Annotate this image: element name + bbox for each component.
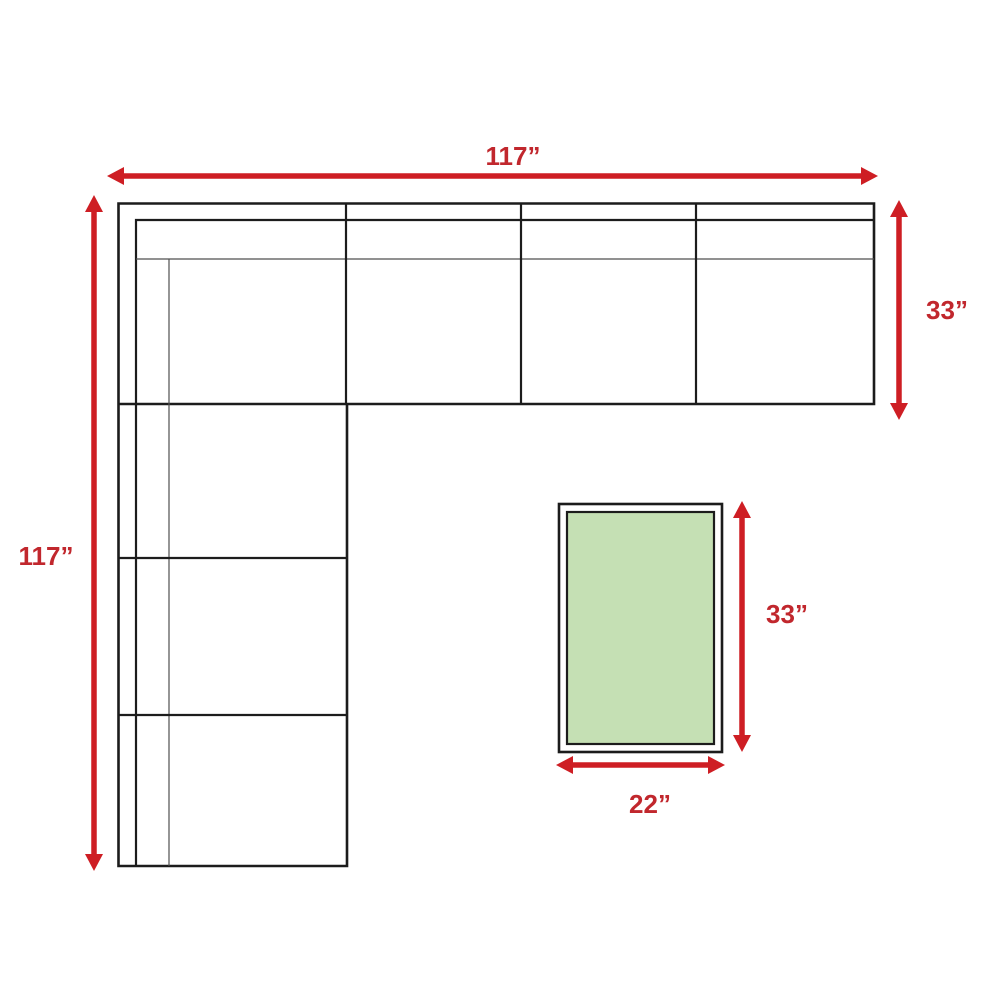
table-height-arrow [733, 501, 751, 752]
sofa-backrest-line [136, 220, 874, 866]
furniture-dimension-diagram: 117” 117” 33” 33” 22” [0, 0, 1000, 1000]
table-width-label: 22” [629, 789, 671, 819]
sofa-height-label: 117” [19, 541, 74, 571]
table-height-label: 33” [766, 599, 808, 629]
coffee-table-top [567, 512, 714, 744]
sofa-width-label: 117” [486, 141, 541, 171]
sofa-dimension-drawing: 117” 117” 33” 33” 22” [0, 0, 1000, 1000]
coffee-table [559, 504, 722, 752]
sectional-sofa-outline [119, 204, 875, 867]
sofa-outer-boundary [119, 204, 875, 867]
sofa-cushion-line [136, 259, 874, 866]
table-width-arrow [556, 756, 725, 774]
sofa-depth-arrow [890, 200, 908, 420]
sofa-height-arrow [85, 195, 103, 871]
sofa-depth-label: 33” [926, 295, 968, 325]
